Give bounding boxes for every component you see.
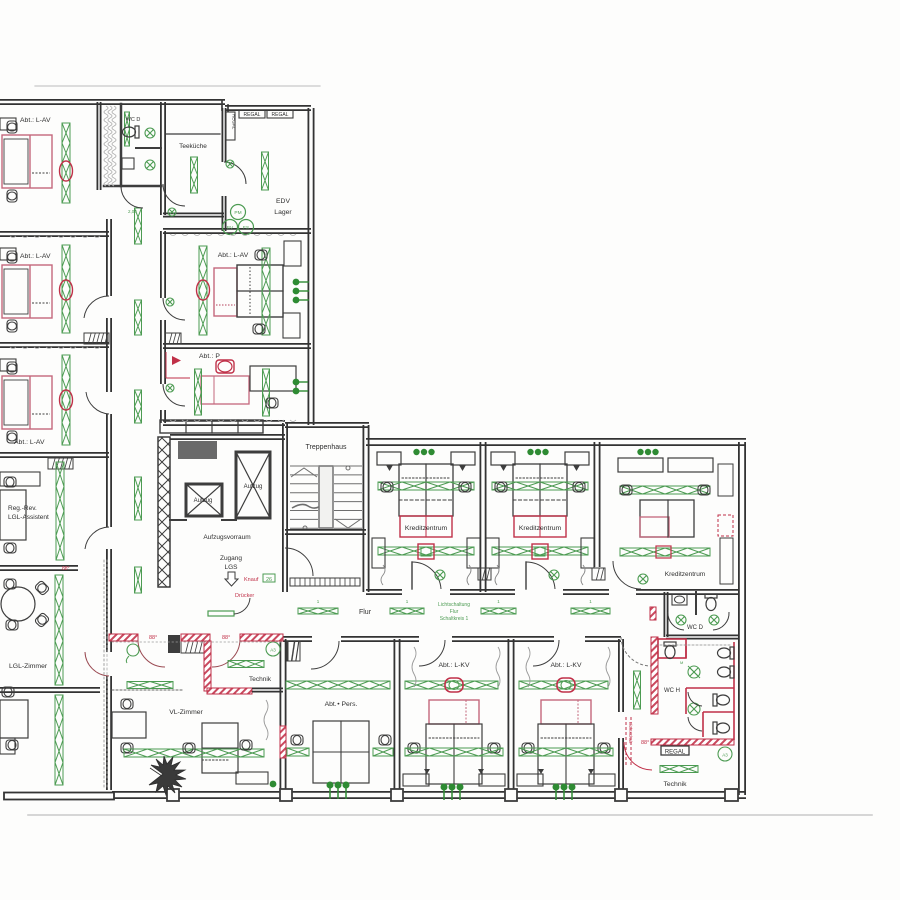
svg-text:VL-Zimmer: VL-Zimmer [169, 709, 203, 716]
svg-text:Drücker: Drücker [235, 593, 254, 599]
svg-text:WC D: WC D [687, 625, 704, 631]
svg-text:88°: 88° [62, 566, 70, 572]
svg-text:REGAL: REGAL [665, 750, 686, 756]
svg-text:A3: A3 [722, 753, 728, 758]
svg-text:WC D: WC D [126, 117, 141, 123]
svg-text:Aufzug: Aufzug [244, 484, 263, 490]
svg-text:Kreditzentrum: Kreditzentrum [405, 525, 448, 532]
svg-text:LGL-Assistent: LGL-Assistent [8, 514, 49, 521]
svg-text:Knauf: Knauf [244, 577, 259, 583]
svg-text:EDV: EDV [276, 198, 290, 205]
svg-text:Abt. • Pers.: Abt. • Pers. [325, 701, 358, 708]
svg-text:Abt.: L-KV: Abt.: L-KV [439, 662, 470, 669]
svg-text:Lichtschalt: Lichtschalt [628, 722, 633, 744]
svg-text:Abt.: L-AV: Abt.: L-AV [20, 253, 51, 260]
svg-text:REGAL: REGAL [272, 112, 289, 118]
svg-text:Kreditzentrum: Kreditzentrum [665, 571, 705, 578]
svg-text:Lichtschaltung: Lichtschaltung [438, 602, 470, 608]
svg-text:FS: FS [243, 225, 249, 231]
svg-text:26: 26 [266, 577, 272, 583]
svg-text:2,00: 2,00 [128, 209, 137, 214]
svg-text:Lager: Lager [274, 209, 292, 216]
svg-text:Zugang: Zugang [220, 555, 242, 562]
svg-text:Technik: Technik [249, 676, 272, 683]
svg-text:Flur: Flur [450, 609, 459, 615]
svg-text:Teeküche: Teeküche [179, 143, 207, 150]
svg-text:Aufzug: Aufzug [194, 498, 213, 504]
svg-text:Flur: Flur [359, 609, 372, 616]
svg-text:Aufzugsvorraum: Aufzugsvorraum [203, 534, 250, 541]
svg-text:Abt.: L-AV: Abt.: L-AV [218, 252, 249, 259]
svg-text:LGL-Zimmer: LGL-Zimmer [9, 663, 48, 670]
svg-text:88°: 88° [641, 740, 649, 746]
svg-text:WC H: WC H [664, 688, 680, 694]
svg-text:Treppenhaus: Treppenhaus [306, 444, 347, 451]
svg-text:REGAL: REGAL [244, 112, 261, 118]
svg-text:Technik: Technik [663, 781, 687, 788]
svg-text:PM: PM [234, 210, 241, 216]
svg-text:Reg.-Rev.: Reg.-Rev. [8, 505, 37, 512]
svg-text:M: M [680, 660, 683, 665]
svg-text:88°: 88° [149, 635, 157, 641]
svg-text:Abt.: L-KV: Abt.: L-KV [551, 662, 582, 669]
svg-text:BV: BV [227, 225, 234, 231]
svg-text:LGS: LGS [224, 564, 238, 571]
svg-text:Abt.: L-AV: Abt.: L-AV [14, 439, 45, 446]
svg-text:Kreditzentrum: Kreditzentrum [519, 525, 562, 532]
svg-text:A3: A3 [270, 648, 276, 653]
svg-text:88°: 88° [222, 635, 230, 641]
svg-text:Abt. : P: Abt. : P [199, 353, 220, 360]
svg-text:REGAL: REGAL [232, 114, 237, 130]
svg-text:Abt.: L-AV: Abt.: L-AV [20, 117, 51, 124]
svg-text:Schaltkreis 1: Schaltkreis 1 [440, 616, 469, 622]
